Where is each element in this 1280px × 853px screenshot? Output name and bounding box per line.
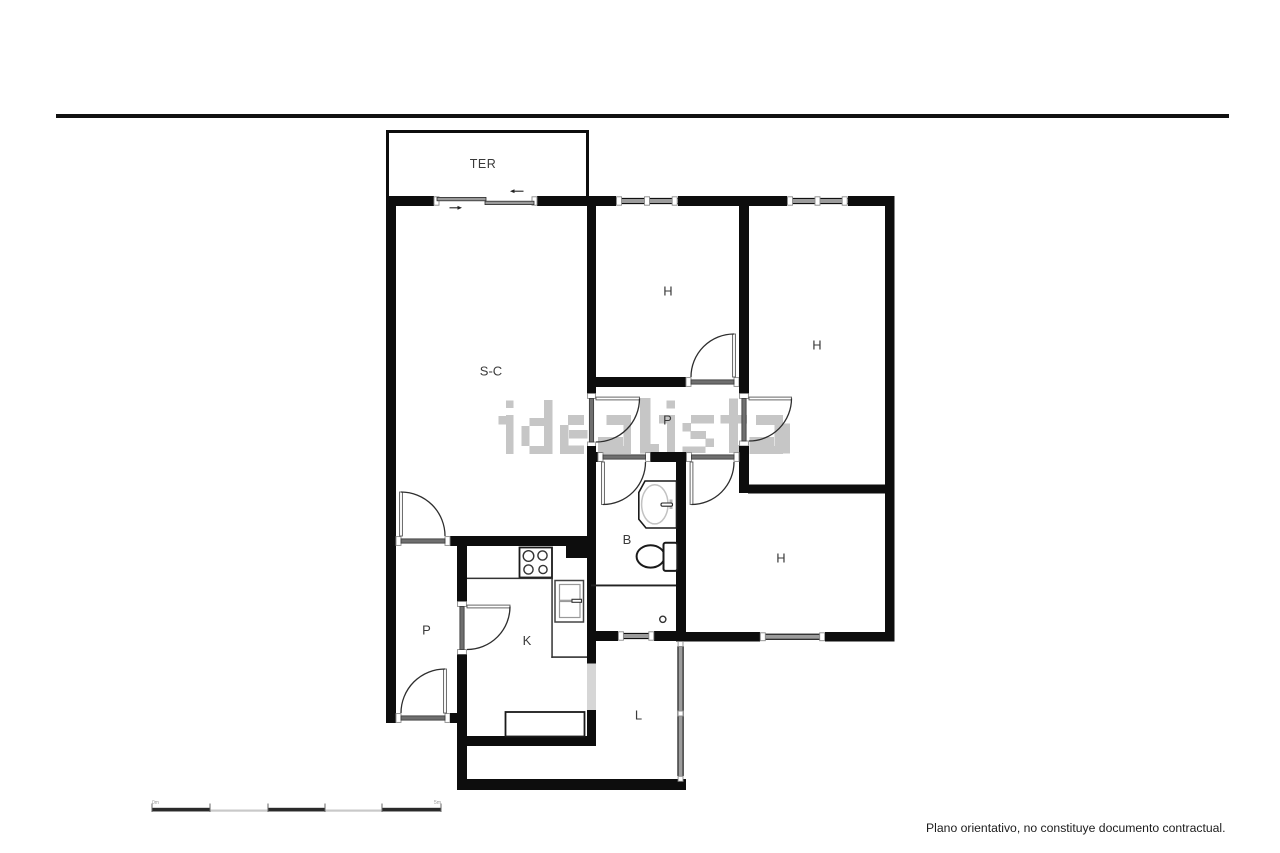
svg-text:5m: 5m [434, 800, 441, 806]
svg-text:H: H [663, 284, 672, 299]
svg-text:P: P [422, 623, 431, 638]
svg-text:H: H [812, 338, 821, 353]
svg-text:L: L [635, 708, 642, 723]
svg-text:H: H [776, 551, 785, 566]
svg-text:0m: 0m [152, 800, 159, 806]
svg-text:S-C: S-C [480, 364, 502, 379]
svg-text:P: P [663, 413, 672, 428]
svg-text:Plano orientativo, no constitu: Plano orientativo, no constituye documen… [926, 821, 1225, 835]
svg-text:TER: TER [470, 157, 497, 171]
svg-text:K: K [523, 633, 532, 648]
svg-text:B: B [623, 532, 632, 547]
